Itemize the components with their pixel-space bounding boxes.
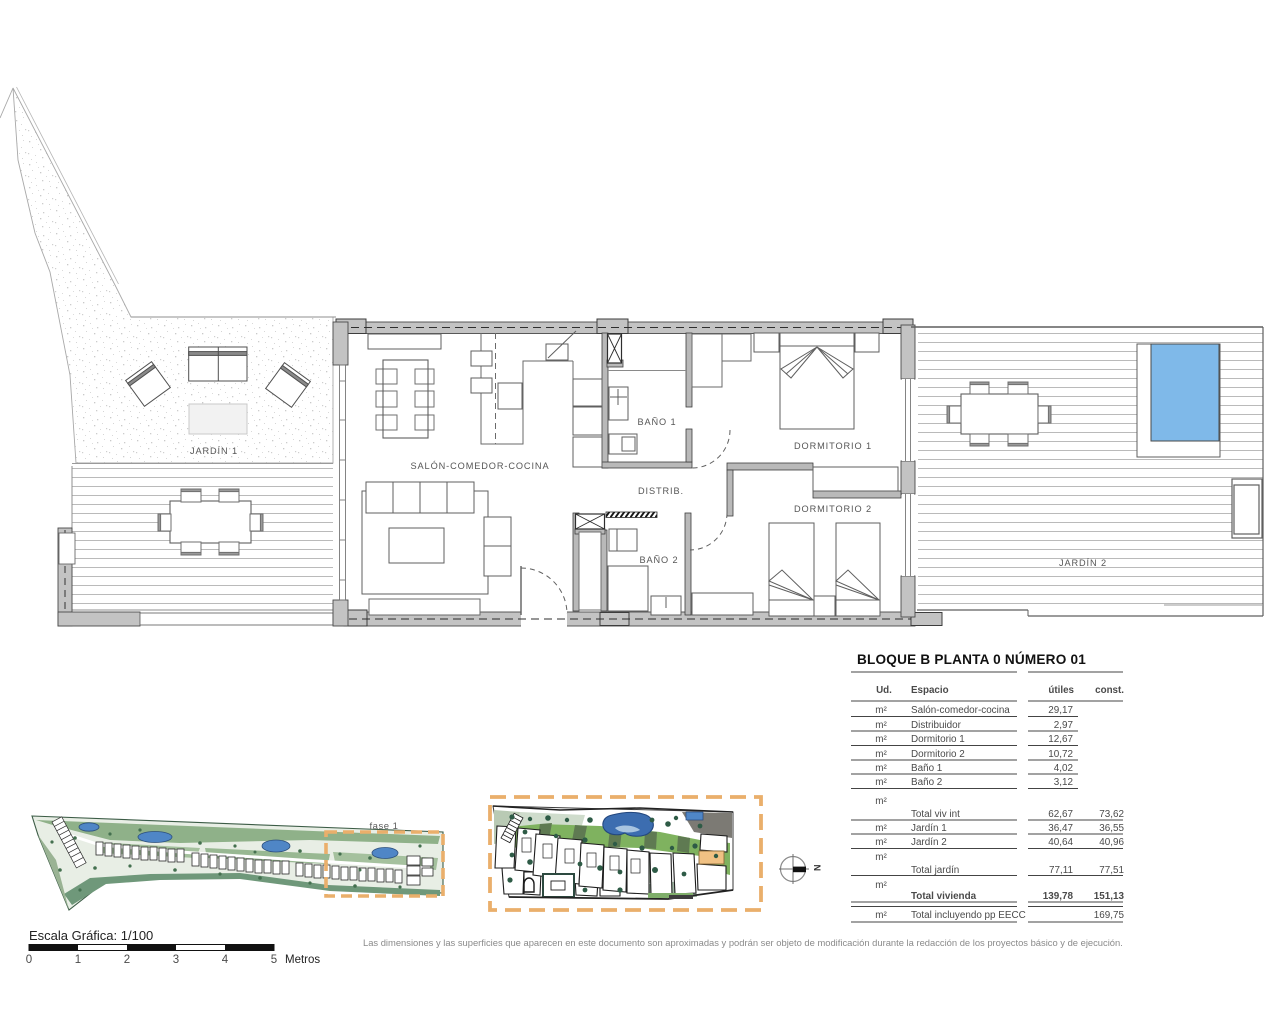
svg-text:2,97: 2,97 — [1054, 720, 1073, 731]
svg-text:BAÑO 2: BAÑO 2 — [639, 555, 678, 565]
svg-text:N: N — [812, 865, 822, 872]
svg-text:m²: m² — [875, 852, 887, 863]
svg-text:BLOQUE B PLANTA 0 NÚMERO 01: BLOQUE B PLANTA 0 NÚMERO 01 — [857, 652, 1086, 667]
svg-text:Baño 2: Baño 2 — [911, 777, 942, 788]
svg-text:m²: m² — [875, 880, 887, 891]
svg-text:Total vivienda: Total vivienda — [911, 891, 977, 902]
svg-text:151,13: 151,13 — [1094, 891, 1125, 902]
svg-text:Total viv int: Total viv int — [911, 809, 960, 820]
svg-text:DORMITORIO 2: DORMITORIO 2 — [794, 504, 872, 514]
svg-text:Metros: Metros — [285, 954, 320, 966]
svg-text:2: 2 — [124, 954, 130, 966]
svg-text:5: 5 — [271, 954, 277, 966]
svg-text:36,55: 36,55 — [1099, 823, 1124, 834]
svg-text:Espacio: Espacio — [911, 685, 949, 696]
svg-text:62,67: 62,67 — [1048, 809, 1073, 820]
svg-text:3,12: 3,12 — [1054, 777, 1073, 788]
svg-text:Dormitorio 2: Dormitorio 2 — [911, 749, 965, 760]
svg-text:3: 3 — [173, 954, 179, 966]
svg-text:36,47: 36,47 — [1048, 823, 1073, 834]
svg-text:Distribuidor: Distribuidor — [911, 720, 962, 731]
svg-text:m²: m² — [875, 749, 887, 760]
svg-text:139,78: 139,78 — [1043, 891, 1074, 902]
svg-text:169,75: 169,75 — [1094, 910, 1125, 921]
svg-text:DISTRIB.: DISTRIB. — [638, 486, 684, 496]
svg-text:BAÑO 1: BAÑO 1 — [637, 417, 676, 427]
svg-text:Dormitorio 1: Dormitorio 1 — [911, 734, 965, 745]
svg-text:DORMITORIO 1: DORMITORIO 1 — [794, 441, 872, 451]
svg-text:m²: m² — [875, 837, 887, 848]
svg-text:m²: m² — [875, 796, 887, 807]
svg-text:Total jardín: Total jardín — [911, 865, 959, 876]
svg-text:0: 0 — [26, 954, 32, 966]
svg-text:Salón-comedor-cocina: Salón-comedor-cocina — [911, 705, 1010, 716]
svg-text:JARDÍN 1: JARDÍN 1 — [190, 446, 238, 456]
svg-text:m²: m² — [875, 720, 887, 731]
svg-text:4: 4 — [222, 954, 229, 966]
svg-text:1: 1 — [75, 954, 81, 966]
svg-text:m²: m² — [875, 910, 887, 921]
svg-text:Baño 1: Baño 1 — [911, 763, 943, 774]
svg-text:40,96: 40,96 — [1099, 837, 1124, 848]
svg-text:SALÓN-COMEDOR-COCINA: SALÓN-COMEDOR-COCINA — [411, 461, 550, 471]
svg-text:Jardín 1: Jardín 1 — [911, 823, 947, 834]
svg-text:m²: m² — [875, 734, 887, 745]
svg-text:77,11: 77,11 — [1049, 865, 1073, 876]
svg-text:const.: const. — [1095, 685, 1124, 696]
svg-text:Total incluyendo pp EECC: Total incluyendo pp EECC — [911, 910, 1026, 921]
svg-text:4,02: 4,02 — [1054, 763, 1073, 774]
svg-text:Escala Gráfica: 1/100: Escala Gráfica: 1/100 — [29, 928, 153, 943]
svg-text:40,64: 40,64 — [1048, 837, 1073, 848]
svg-text:Las dimensiones y las superfic: Las dimensiones y las superficies que ap… — [363, 937, 1123, 948]
svg-text:73,62: 73,62 — [1099, 809, 1124, 820]
svg-text:77,51: 77,51 — [1099, 865, 1124, 876]
svg-text:12,67: 12,67 — [1048, 734, 1073, 745]
svg-text:m²: m² — [875, 705, 887, 716]
svg-text:útiles: útiles — [1048, 685, 1074, 696]
svg-text:Jardín 2: Jardín 2 — [911, 837, 947, 848]
svg-text:29,17: 29,17 — [1048, 705, 1073, 716]
svg-text:10,72: 10,72 — [1048, 749, 1073, 760]
svg-text:Ud.: Ud. — [876, 685, 892, 696]
svg-text:m²: m² — [875, 763, 887, 774]
svg-text:JARDÍN 2: JARDÍN 2 — [1059, 558, 1107, 568]
svg-text:m²: m² — [875, 777, 887, 788]
svg-text:m²: m² — [875, 823, 887, 834]
